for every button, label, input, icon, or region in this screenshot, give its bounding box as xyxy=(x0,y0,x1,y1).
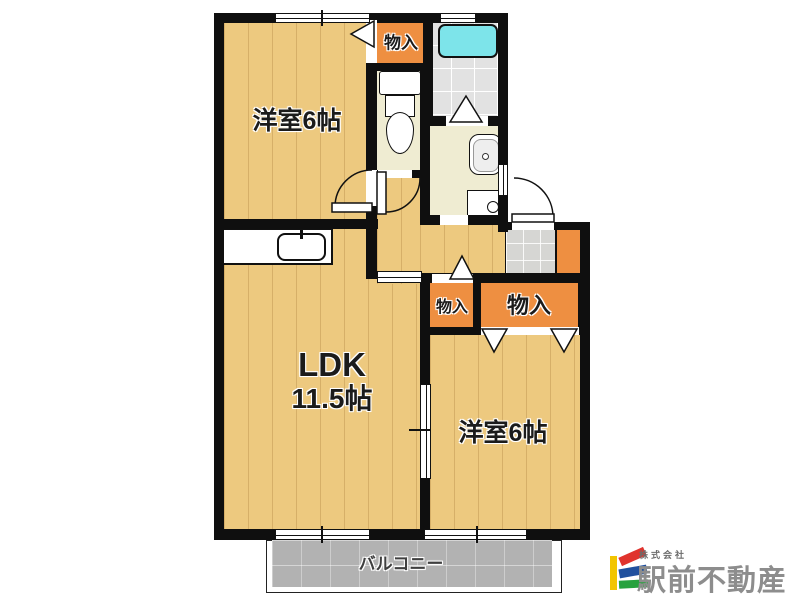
ldk-bedroom-bottom-sliding-door xyxy=(420,384,431,479)
closet-top-label: 物入 xyxy=(384,29,418,54)
bedroom-top-label: 洋室6帖 xyxy=(253,101,342,137)
wall-under-closet-top xyxy=(366,63,425,71)
wall-closet-divider xyxy=(473,277,481,327)
front-door-arc xyxy=(514,178,553,217)
wall-right-lower xyxy=(580,222,590,540)
bathtub xyxy=(438,24,498,58)
hall-ldk-sliding-door xyxy=(377,271,422,283)
wall-hall-west xyxy=(366,219,377,279)
closet-small-door-gap xyxy=(432,274,473,283)
front-door-gap xyxy=(512,222,554,230)
closet-top-door-gap xyxy=(366,20,377,63)
closet-small-label: 物入 xyxy=(436,293,468,317)
logo-company-name: 駅前不動産 xyxy=(637,557,787,599)
sliding-door-tick xyxy=(409,429,431,431)
closet-large-label: 物入 xyxy=(507,288,551,320)
ldk-window-tick xyxy=(321,526,323,543)
hall-floor xyxy=(377,170,422,284)
bedroom-bottom-window-tick xyxy=(476,526,478,543)
shoe-cabinet xyxy=(555,227,582,277)
company-logo: 株式会社 駅前不動産 xyxy=(606,546,800,596)
toilet-shelf xyxy=(379,71,421,95)
washroom-door-gap xyxy=(440,215,468,225)
bedroom-bottom-label: 洋室6帖 xyxy=(459,413,548,449)
wall-bottom xyxy=(214,529,590,540)
wall-bedroom-bottom-west-a xyxy=(420,327,430,387)
toilet-door-gap xyxy=(378,170,412,178)
wall-left xyxy=(214,13,224,540)
ldk-size-label: 11.5帖 xyxy=(292,377,373,417)
washroom-window xyxy=(498,164,508,196)
closet-large-door-gap xyxy=(481,327,579,335)
wall-bath-west xyxy=(424,13,433,123)
front-door-leaf xyxy=(512,214,554,222)
balcony-label: バルコニー xyxy=(359,550,444,575)
bedroom-top-window-tick xyxy=(321,10,323,26)
bath-door-gap xyxy=(446,116,488,126)
washbasin-drain-icon xyxy=(482,153,489,160)
bedroom-top-door-gap xyxy=(366,170,377,206)
floor-plan: 洋室6帖 物入 LDK 11.5帖 物入 物入 洋室6帖 バルコニー 株式会社 … xyxy=(0,0,800,600)
logo-yellow-bar-icon xyxy=(610,556,617,590)
wall-bedroom-top-south xyxy=(214,219,378,229)
entrance-tile xyxy=(505,225,557,279)
corridor-floor xyxy=(420,225,506,275)
bathroom-window xyxy=(440,13,476,23)
